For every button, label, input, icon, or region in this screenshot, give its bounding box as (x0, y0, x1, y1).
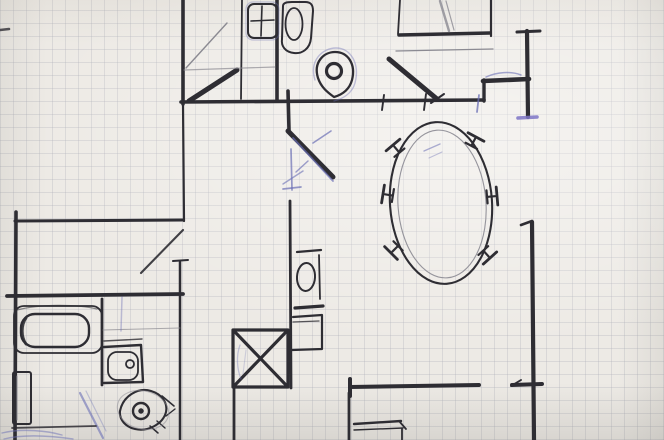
dining-table-oval-outer (384, 119, 497, 288)
wall-right-upper-vertical (527, 31, 528, 117)
door-dining-hinge-tick-blue (477, 95, 479, 112)
door-hall-blue-jamb (291, 149, 292, 190)
bath-toilet-corner-line-2 (166, 409, 175, 416)
door-hall-blue-jamb-tick (283, 187, 301, 189)
shaft-blue-shade-1 (237, 345, 241, 379)
floor-plan-photo (0, 0, 664, 440)
wc-toilet-pin-blue-echo (313, 48, 356, 101)
wall-center-lower-vertical (290, 201, 291, 388)
vanity-pencil-line (103, 328, 180, 330)
wall-step-horizontal (483, 79, 529, 81)
door-hall-blue-parallel (293, 138, 333, 181)
washing-machine-cross-horizontal (251, 20, 274, 21)
door-hall-blue-hatch-1 (313, 131, 331, 143)
wall-right-upper-bottom-cap (518, 117, 537, 118)
washing-machine-cross-vertical (261, 6, 262, 36)
door-entry-leaf (189, 70, 237, 101)
door-bathroom-leaf (141, 230, 183, 273)
door-hall-blue-hatch-3 (283, 171, 303, 184)
dining-chair-bottom-left (385, 240, 405, 260)
wall-right-lower-vertical (532, 222, 534, 440)
wall-bathroom-right-cap (173, 260, 188, 261)
bathtub-dark-edge (22, 318, 26, 344)
step-wall-blue-scribble (486, 73, 521, 77)
hall-wc-toilet-base-dash (295, 306, 323, 308)
wc-toilet-pin-outline (317, 52, 353, 97)
door-hall-leaf (288, 131, 333, 177)
wall-entry-inner-vertical (241, 0, 242, 99)
hall-wc-toilet-bowl (296, 263, 315, 292)
door-dining-leaf (389, 59, 437, 99)
sink-tap-circle (126, 360, 134, 368)
bed-foot-echo-line (396, 49, 493, 51)
bottom-room-shelf-lower (354, 428, 403, 430)
door-entry-swing-pencil (186, 23, 227, 68)
bathtub-inner (21, 314, 89, 347)
wall-left-room-top-horizontal (15, 220, 183, 221)
bath-blue-diagonal (80, 393, 103, 438)
wall-bottom-horizontal (350, 385, 479, 387)
chair-blue-mark-1 (424, 144, 440, 151)
door-hall-blue-hatch-2 (296, 161, 308, 172)
photo-edge-mark (0, 29, 9, 30)
floor-plan-drawing (0, 0, 664, 440)
door-dining-hinge-tick-2 (424, 94, 426, 110)
door-dining-hinge-tick-1 (382, 95, 384, 110)
dining-chair-top-left (386, 139, 406, 158)
wall-right-upper-top-cap (517, 31, 540, 32)
wall-bathroom-top-horizontal (7, 294, 183, 296)
hall-wc-unit-top-echo (293, 321, 319, 322)
wall-center-stub-vertical (288, 91, 289, 130)
bed-left-edge (398, 0, 400, 34)
hall-wc-toilet-side (319, 255, 320, 299)
bath-bottom-blue-scribble (2, 430, 73, 439)
bath-toilet-dot (139, 409, 144, 414)
shaft-blue-shade-2 (243, 350, 246, 374)
dining-chair-left (382, 185, 395, 204)
wc-toilet-pin-ring (327, 64, 342, 79)
chair-blue-mark-2 (429, 152, 442, 158)
bed-foot-edge (399, 33, 490, 35)
hall-wc-unit-box (292, 315, 322, 350)
wc-basin-inner-oval (286, 8, 303, 40)
bath-bottom-line (12, 426, 96, 428)
entry-shelf-pencil-line (184, 67, 275, 70)
sink-top-line (104, 339, 142, 341)
bottom-room-shelf-top (354, 421, 401, 424)
hall-wc-shelf-dash (297, 250, 321, 252)
vanity-blue-vertical (121, 297, 122, 331)
door-bottom-jamb-dash (512, 384, 542, 385)
wall-far-left-vertical (15, 212, 16, 440)
wall-left-mid-vertical (183, 104, 184, 221)
